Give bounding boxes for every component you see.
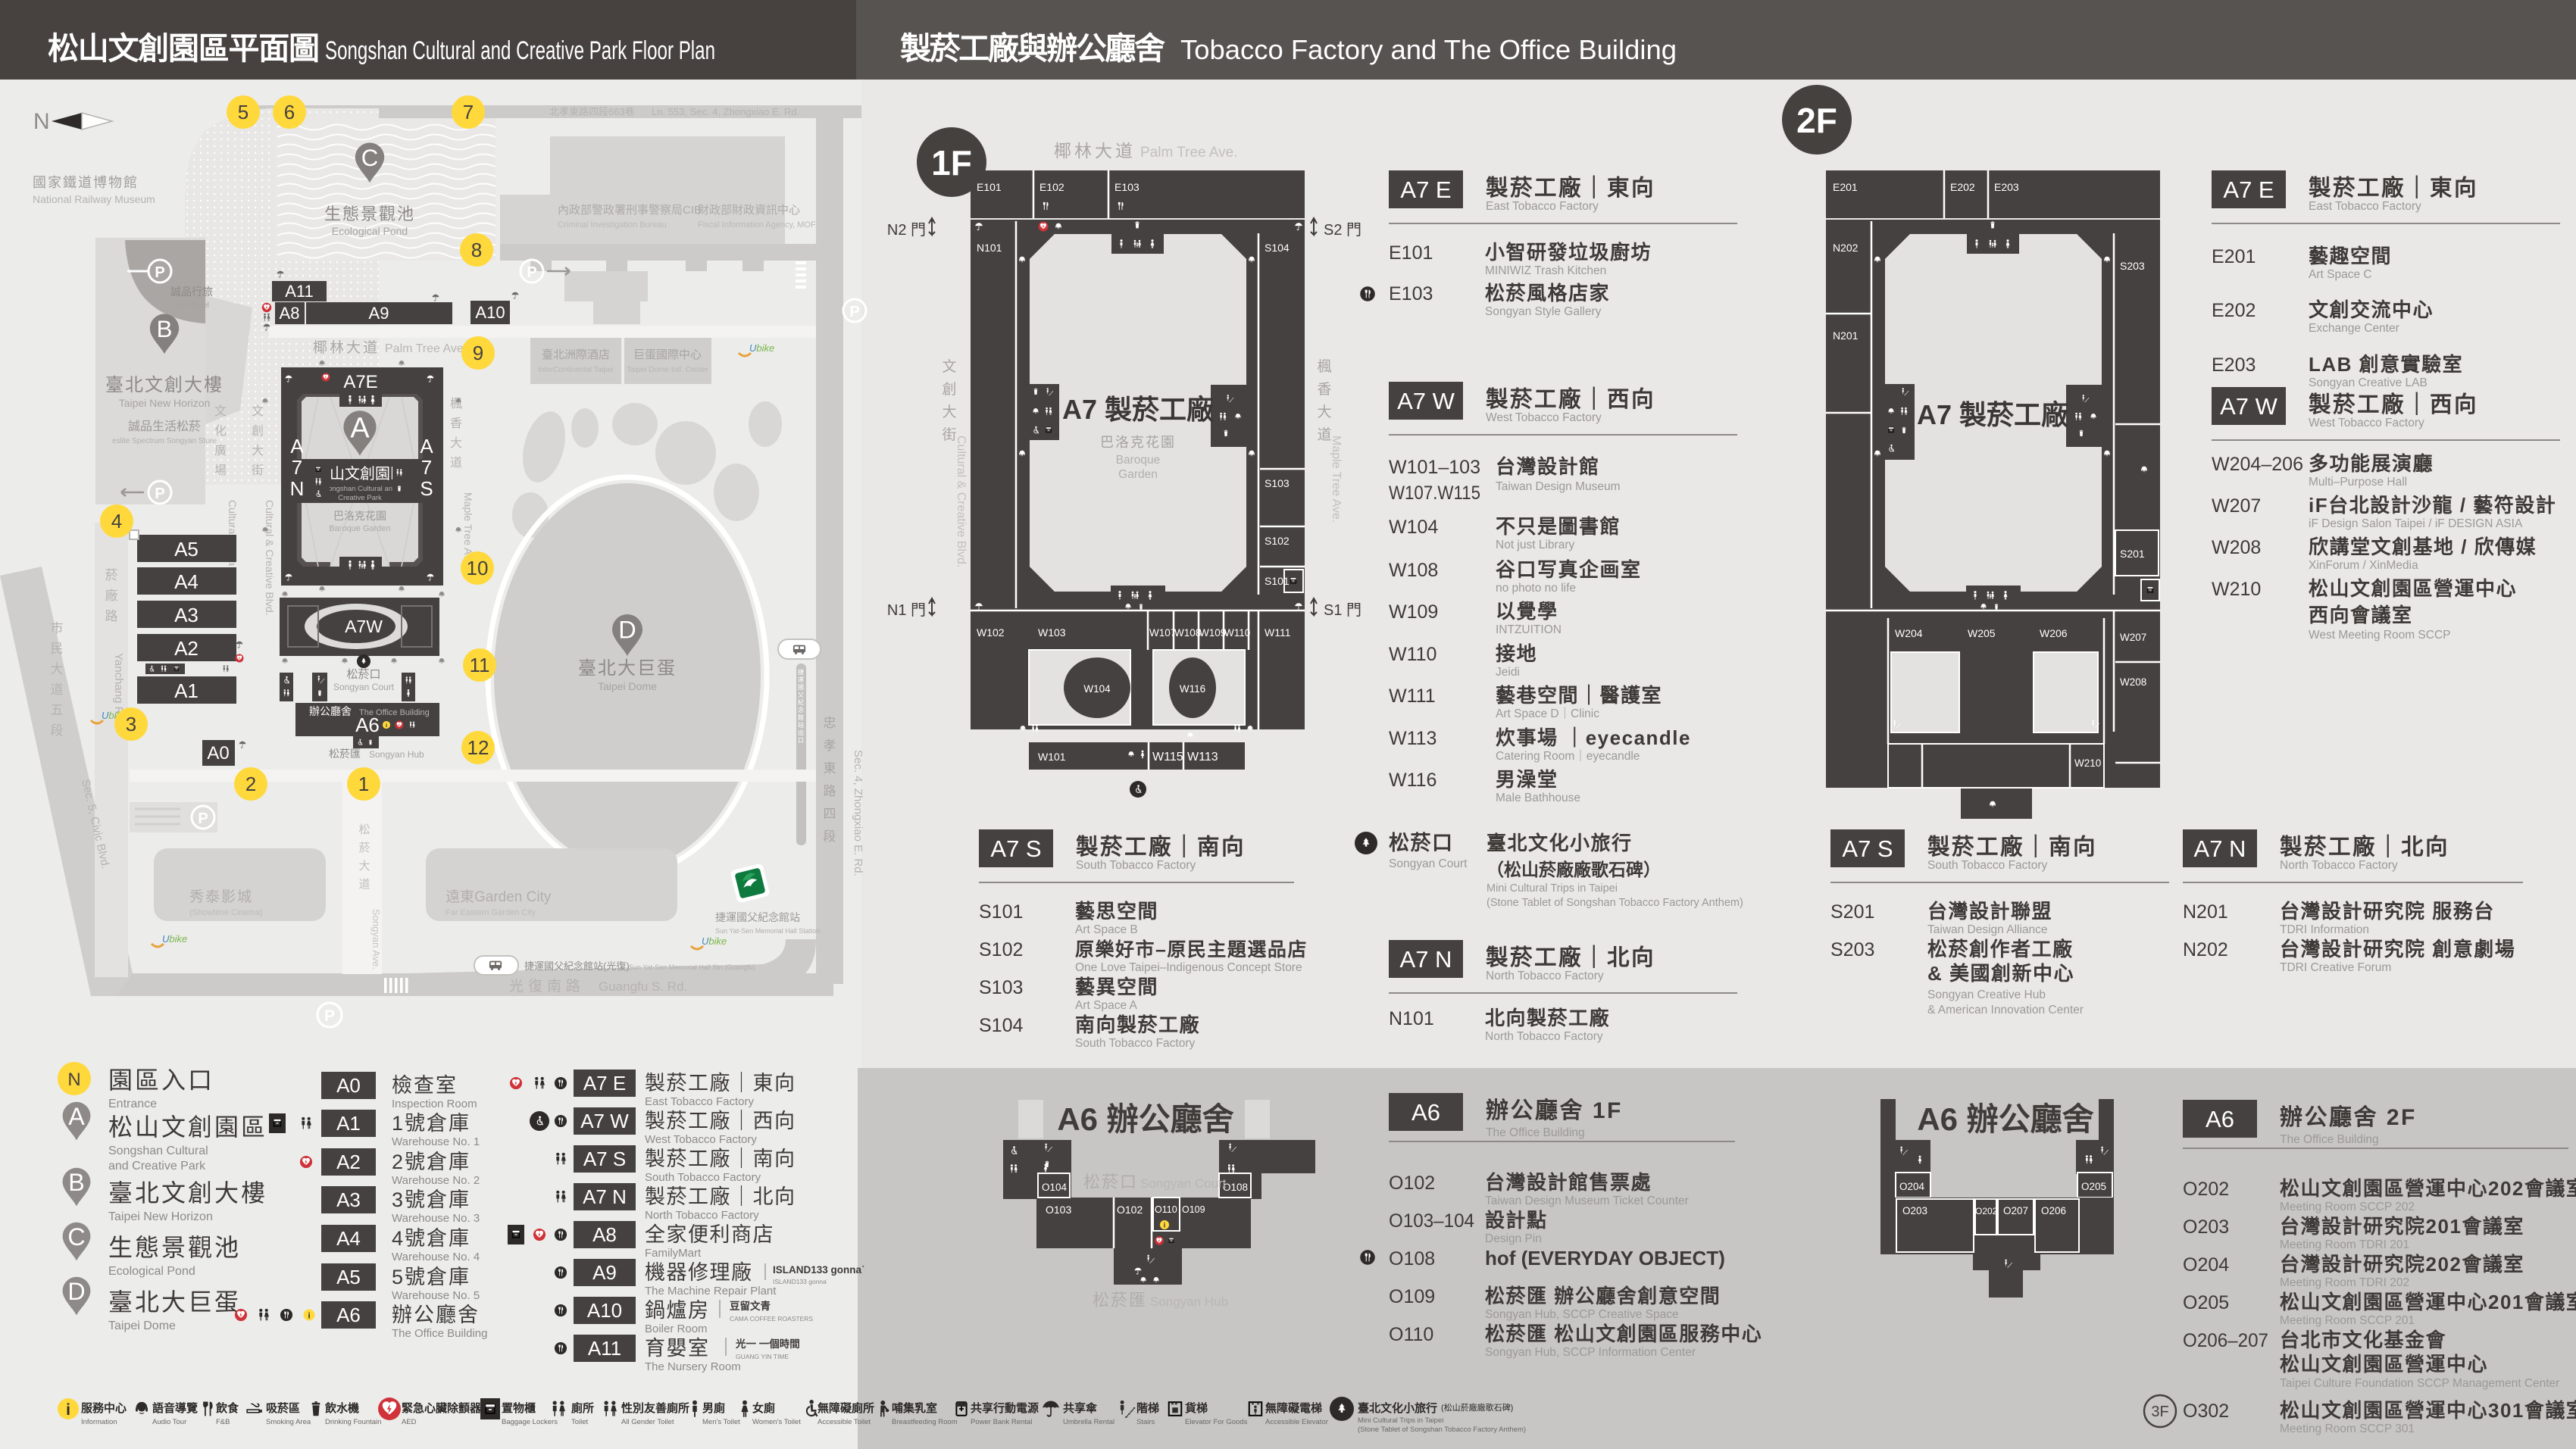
svg-text:Palm Tree Ave.: Palm Tree Ave. [385, 342, 467, 355]
svg-text:West Tobacco Factory: West Tobacco Factory [645, 1133, 757, 1146]
svg-text:Drinking Fountain: Drinking Fountain [325, 1418, 381, 1426]
svg-text:小智研發垃圾廚坊: 小智研發垃圾廚坊 [1485, 241, 1652, 264]
svg-text:Toilet: Toilet [571, 1418, 589, 1426]
svg-text:Men’s Toilet: Men’s Toilet [702, 1418, 740, 1426]
svg-text:女廁: 女廁 [752, 1401, 775, 1415]
svg-text:Ln. 553, Sec. 4, Zhongxiao E.: Ln. 553, Sec. 4, Zhongxiao E. Rd. [652, 106, 799, 117]
svg-text:S203: S203 [2120, 260, 2145, 272]
svg-text:A7S: A7S [420, 435, 433, 500]
svg-text:北孝東路四段663巷: 北孝東路四段663巷 [549, 106, 635, 117]
svg-text:i: i [386, 722, 387, 729]
svg-text:S102: S102 [1265, 535, 1290, 547]
svg-text:TDRI Creative Forum: TDRI Creative Forum [2280, 961, 2391, 974]
svg-text:椰林大道: 椰林大道 [1054, 141, 1136, 161]
svg-text:4號倉庫: 4號倉庫 [392, 1227, 470, 1250]
svg-text:內政部警政署刑事警察局CIB: 內政部警政署刑事警察局CIB [558, 203, 702, 217]
svg-text:辦公廳舍: 辦公廳舍 [309, 705, 352, 717]
svg-text:Meeting Room SCCP 202: Meeting Room SCCP 202 [2280, 1201, 2415, 1213]
svg-text:Exchange Center: Exchange Center [2309, 322, 2399, 335]
svg-text:S1 門: S1 門 [1324, 602, 1361, 619]
svg-text:A7 製菸工廠: A7 製菸工廠 [1062, 394, 1214, 425]
svg-text:接地: 接地 [1496, 642, 1537, 665]
svg-text:Inspection Room: Inspection Room [392, 1098, 477, 1110]
svg-text:W102: W102 [977, 626, 1005, 639]
svg-text:Boiler Room: Boiler Room [645, 1323, 708, 1335]
svg-text:W206: W206 [2040, 627, 2068, 639]
svg-text:巨蛋國際中心: 巨蛋國際中心 [633, 348, 702, 361]
svg-text:財政部財政資訊中心: 財政部財政資訊中心 [698, 204, 800, 217]
svg-text:製菸工廠｜北向: 製菸工廠｜北向 [645, 1185, 796, 1208]
svg-text:W207: W207 [2212, 495, 2261, 517]
svg-text:A7 W: A7 W [580, 1110, 629, 1132]
svg-text:Art Space D｜Clinic: Art Space D｜Clinic [1496, 707, 1599, 720]
svg-text:InterContinental Taipei: InterContinental Taipei [538, 366, 613, 374]
svg-text:臺北大巨蛋: 臺北大巨蛋 [578, 658, 677, 679]
svg-text:O203: O203 [2183, 1216, 2229, 1238]
svg-text:E101: E101 [977, 181, 1002, 193]
svg-text:i: i [66, 1401, 70, 1419]
svg-text:O108: O108 [1223, 1182, 1248, 1193]
svg-text:Ecological Pond: Ecological Pond [332, 225, 408, 237]
svg-text:男廁: 男廁 [702, 1401, 725, 1415]
svg-text:製菸工廠｜西向: 製菸工廠｜西向 [1486, 386, 1655, 412]
svg-text:East Tobacco Factory: East Tobacco Factory [645, 1095, 754, 1108]
svg-text:W210: W210 [2074, 757, 2101, 769]
svg-text:臺北文化小旅行: 臺北文化小旅行 [1358, 1401, 1437, 1415]
svg-text:N202: N202 [2183, 939, 2228, 960]
svg-text:W113: W113 [1389, 728, 1436, 749]
svg-text:Songyan Hub: Songyan Hub [369, 749, 424, 760]
svg-text:A6: A6 [1411, 1099, 1440, 1126]
svg-text:10: 10 [467, 557, 489, 579]
svg-text:A11: A11 [285, 282, 314, 301]
svg-text:製菸工廠｜西向: 製菸工廠｜西向 [645, 1110, 796, 1132]
svg-text:Songshan Cultural and: Songshan Cultural and [324, 485, 397, 493]
svg-text:F&B: F&B [216, 1418, 230, 1426]
svg-text:E201: E201 [1833, 181, 1858, 193]
svg-text:臺北文創大樓: 臺北文創大樓 [108, 1179, 267, 1207]
svg-text:A7 製菸工廠: A7 製菸工廠 [1917, 399, 2068, 430]
svg-text:TDRI Information: TDRI Information [2280, 923, 2369, 936]
svg-text:育嬰室: 育嬰室 [645, 1337, 710, 1360]
svg-text:松菸匯 辦公廳舍創意空間: 松菸匯 辦公廳舍創意空間 [1485, 1285, 1721, 1307]
svg-text:Cultural & Creative Blvd.: Cultural & Creative Blvd. [264, 500, 276, 616]
svg-text:The Office Building: The Office Building [392, 1327, 487, 1340]
svg-text:全家便利商店: 全家便利商店 [645, 1223, 774, 1246]
svg-text:A7 S: A7 S [1842, 835, 1893, 862]
svg-text:製菸工廠｜南向: 製菸工廠｜南向 [645, 1148, 796, 1170]
svg-text:S101: S101 [1265, 575, 1290, 587]
svg-text:Garden: Garden [1118, 468, 1158, 481]
svg-text:One Love Taipei–Indigenous Con: One Love Taipei–Indigenous Concept Store [1075, 961, 1302, 974]
svg-text:A7N: A7N [290, 435, 305, 500]
svg-text:藝異空間: 藝異空間 [1075, 976, 1158, 998]
svg-text:捷運國父紀念館站: 捷運國父紀念館站 [715, 911, 800, 923]
svg-text:光一 一個時間: 光一 一個時間 [735, 1338, 800, 1350]
svg-text:P: P [198, 810, 208, 827]
svg-text:A6 辦公廳舍: A6 辦公廳舍 [1057, 1101, 1233, 1137]
svg-text:B: B [68, 1169, 84, 1196]
svg-text:Sec. 4, Zhongxiao E. Rd.: Sec. 4, Zhongxiao E. Rd. [852, 750, 864, 876]
svg-text:The Machine Repair Plant: The Machine Repair Plant [645, 1285, 777, 1298]
svg-text:A4: A4 [336, 1227, 361, 1250]
svg-text:北向製菸工廠: 北向製菸工廠 [1485, 1007, 1610, 1029]
svg-text:A8: A8 [592, 1223, 617, 1246]
svg-text:松山文創園區營運中心202會議室: 松山文創園區營運中心202會議室 [2280, 1177, 2576, 1200]
svg-text:Information: Information [81, 1418, 117, 1426]
svg-text:Entrance: Entrance [108, 1098, 157, 1110]
svg-text:Meeting Room SCCP 201: Meeting Room SCCP 201 [2280, 1314, 2415, 1327]
svg-text:辦公廳舍 2F: 辦公廳舍 2F [2280, 1104, 2417, 1130]
svg-text:台灣設計研究院202會議室: 台灣設計研究院202會議室 [2280, 1253, 2524, 1276]
svg-text:The Office Building: The Office Building [1486, 1126, 1585, 1139]
svg-text:Male Bathhouse: Male Bathhouse [1496, 792, 1580, 804]
svg-text:Songyan Court: Songyan Court [333, 682, 395, 692]
svg-text:S201: S201 [1830, 901, 1874, 923]
svg-text:3: 3 [126, 713, 136, 735]
svg-text:A7 S: A7 S [583, 1148, 626, 1170]
svg-text:Taiwan Design Museum: Taiwan Design Museum [1496, 480, 1621, 493]
svg-text:O103: O103 [1046, 1204, 1071, 1216]
svg-text:(Stone Tablet of Songshan Toba: (Stone Tablet of Songshan Tobacco Factor… [1487, 897, 1743, 909]
svg-text:臺北文化小旅行: 臺北文化小旅行 [1487, 832, 1633, 854]
svg-text:A0: A0 [336, 1074, 361, 1097]
svg-text:A7W: A7W [345, 617, 383, 636]
svg-text:11: 11 [470, 654, 490, 676]
svg-text:A5: A5 [174, 538, 199, 561]
svg-text:A7 E: A7 E [2223, 176, 2274, 203]
svg-text:欣講堂文創基地 / 欣傳媒: 欣講堂文創基地 / 欣傳媒 [2309, 536, 2537, 558]
svg-text:D: D [618, 617, 636, 644]
svg-text:1F: 1F [931, 143, 972, 183]
svg-text:eslite Spectrum Songyan Store: eslite Spectrum Songyan Store [112, 437, 217, 445]
svg-text:無障礙廁所: 無障礙廁所 [818, 1401, 874, 1415]
svg-text:椰林大道: 椰林大道 [313, 339, 380, 356]
svg-text:鍋爐房: 鍋爐房 [645, 1299, 710, 1322]
svg-text:Stairs: Stairs [1136, 1418, 1155, 1426]
svg-text:飲水機: 飲水機 [324, 1401, 359, 1415]
svg-text:緊急心臟除顫器: 緊急心臟除顫器 [402, 1401, 482, 1415]
svg-text:i: i [308, 1311, 310, 1320]
svg-text:台灣設計研究院 創意劇場: 台灣設計研究院 創意劇場 [2280, 938, 2515, 960]
svg-text:E102: E102 [1039, 181, 1064, 193]
svg-text:East Tobacco Factory: East Tobacco Factory [1486, 200, 1599, 213]
svg-text:Taiwan Design Alliance: Taiwan Design Alliance [1927, 923, 2048, 936]
svg-text:Taipei Culture Foundation SCCP: Taipei Culture Foundation SCCP Managemen… [2280, 1377, 2559, 1390]
svg-text:廁所: 廁所 [571, 1401, 594, 1415]
svg-text:B: B [157, 316, 173, 342]
svg-text:Warehouse No. 4: Warehouse No. 4 [392, 1251, 480, 1263]
svg-text:語音導覽: 語音導覽 [152, 1401, 198, 1415]
svg-text:National Railway Museum: National Railway Museum [33, 193, 155, 205]
svg-text:製菸工廠與辦公廳舍: 製菸工廠與辦公廳舍 [900, 31, 1165, 66]
svg-text:Women’s Toilet: Women’s Toilet [752, 1418, 801, 1426]
svg-text:台灣設計聯盟: 台灣設計聯盟 [1927, 900, 2052, 923]
svg-text:松菸匯: 松菸匯 [329, 748, 361, 760]
svg-text:豆留文青: 豆留文青 [730, 1300, 771, 1312]
svg-text:N2 門: N2 門 [887, 222, 926, 239]
svg-text:W103: W103 [1038, 626, 1066, 639]
svg-text:Meeting Room SCCP 301: Meeting Room SCCP 301 [2280, 1422, 2415, 1435]
svg-text:Guangfu S. Rd.: Guangfu S. Rd. [599, 979, 687, 994]
svg-text:Songyan Ave.: Songyan Ave. [370, 909, 382, 970]
svg-text:and Creative Park: and Creative Park [108, 1160, 206, 1173]
svg-text:Warehouse No. 5: Warehouse No. 5 [392, 1289, 480, 1302]
svg-text:松菸創作者工廠: 松菸創作者工廠 [1927, 938, 2074, 960]
svg-text:W204–206: W204–206 [2212, 454, 2303, 475]
svg-text:W110: W110 [1224, 627, 1250, 639]
svg-text:O103–104: O103–104 [1389, 1210, 1474, 1232]
svg-text:P: P [527, 264, 536, 281]
svg-text:East Tobacco Factory: East Tobacco Factory [2309, 200, 2421, 213]
svg-text:Warehouse No. 1: Warehouse No. 1 [392, 1135, 480, 1148]
svg-text:W101–103: W101–103 [1389, 457, 1480, 478]
svg-text:S102: S102 [979, 939, 1023, 960]
svg-text:誠品生活松菸: 誠品生活松菸 [128, 420, 201, 433]
svg-text:Songyan Creative Hub: Songyan Creative Hub [1927, 988, 2046, 1001]
svg-text:O204: O204 [2183, 1254, 2229, 1276]
svg-text:A6: A6 [355, 714, 380, 736]
svg-text:Maple Tree Ave.: Maple Tree Ave. [1330, 436, 1343, 523]
svg-text:Mini Cultural Trips in Taipei: Mini Cultural Trips in Taipei [1487, 882, 1618, 895]
svg-text:Songyan Style Gallery: Songyan Style Gallery [1485, 305, 1602, 318]
svg-text:ISLAND133 gonna˙: ISLAND133 gonna˙ [773, 1264, 865, 1276]
svg-text:松菸口: 松菸口 [1389, 832, 1454, 854]
svg-text:W208: W208 [2120, 676, 2146, 688]
svg-text:A4: A4 [174, 570, 199, 593]
svg-text:製菸工廠｜東向: 製菸工廠｜東向 [1486, 175, 1655, 201]
svg-text:3F: 3F [2151, 1404, 2168, 1420]
svg-text:松菸匯 松山文創園區服務中心: 松菸匯 松山文創園區服務中心 [1485, 1323, 1762, 1345]
svg-text:(Stone Tablet of Songshan Toba: (Stone Tablet of Songshan Tobacco Factor… [1358, 1426, 1526, 1434]
svg-text:Meeting Room TDRI 202: Meeting Room TDRI 202 [2280, 1276, 2409, 1289]
svg-text:CAMA COFFEE ROASTERS: CAMA COFFEE ROASTERS [730, 1315, 813, 1323]
svg-text:E103: E103 [1114, 181, 1140, 193]
svg-text:The Nursery Room: The Nursery Room [645, 1360, 741, 1373]
svg-text:C: C [67, 1223, 85, 1251]
svg-text:台北市文化基金會: 台北市文化基金會 [2280, 1329, 2446, 1351]
svg-text:Taipei Dome Intl. Center: Taipei Dome Intl. Center [627, 366, 708, 374]
svg-text:製菸工廠｜東向: 製菸工廠｜東向 [645, 1072, 796, 1095]
svg-text:The Office Building: The Office Building [2280, 1133, 2379, 1146]
svg-text:機器修理廠: 機器修理廠 [645, 1261, 753, 1284]
svg-text:Elevator For Goods: Elevator For Goods [1185, 1418, 1248, 1426]
svg-text:谷口写真企画室: 谷口写真企画室 [1496, 558, 1642, 581]
svg-text:E201: E201 [2212, 246, 2256, 267]
svg-text:A1: A1 [336, 1112, 361, 1135]
svg-text:West Tobacco Factory: West Tobacco Factory [1486, 411, 1602, 424]
svg-text:W115: W115 [1152, 751, 1183, 764]
svg-text:Art Space B: Art Space B [1075, 923, 1138, 936]
svg-text:6: 6 [284, 101, 295, 123]
svg-text:檢查室: 檢查室 [392, 1074, 458, 1097]
svg-text:台灣設計研究院201會議室: 台灣設計研究院201會議室 [2280, 1215, 2524, 1238]
svg-text:i: i [1164, 1222, 1166, 1229]
svg-text:3號倉庫: 3號倉庫 [392, 1188, 470, 1211]
svg-text:N101: N101 [1389, 1008, 1434, 1029]
svg-text:North Tobacco Factory: North Tobacco Factory [645, 1209, 759, 1222]
svg-text:Warehouse No. 2: Warehouse No. 2 [392, 1174, 480, 1187]
svg-text:松山文創園區: 松山文創園區 [108, 1113, 267, 1141]
svg-text:W116: W116 [1180, 683, 1205, 695]
svg-text:O205: O205 [2183, 1292, 2229, 1313]
svg-text:W207: W207 [2120, 632, 2146, 643]
svg-text:O104: O104 [1042, 1182, 1068, 1193]
svg-text:A11: A11 [588, 1337, 621, 1360]
svg-text:A6 辦公廳舍: A6 辦公廳舍 [1917, 1101, 2093, 1137]
svg-text:Cultural & Creative Blvd.: Cultural & Creative Blvd. [955, 436, 968, 567]
svg-text:捷運國父紀念館站(光復): 捷運國父紀念館站(光復) [524, 960, 630, 972]
svg-text:男澡堂: 男澡堂 [1496, 768, 1558, 791]
svg-text:O202: O202 [2183, 1179, 2229, 1200]
svg-text:C: C [361, 145, 379, 171]
svg-text:iF台北設計沙龍 / 藝符設計: iF台北設計沙龍 / 藝符設計 [2309, 494, 2556, 517]
svg-text:E203: E203 [2212, 354, 2256, 376]
svg-text:Ubike: Ubike [702, 935, 727, 947]
svg-text:Songyan Hub, SCCP Creative Spa: Songyan Hub, SCCP Creative Space [1485, 1308, 1679, 1321]
svg-text:Songyan Hub: Songyan Hub [1150, 1294, 1228, 1309]
svg-text:W111: W111 [1265, 626, 1291, 639]
svg-text:A10: A10 [587, 1299, 622, 1322]
svg-text:A0: A0 [207, 743, 229, 764]
svg-text:松山文創園區營運中心: 松山文創園區營運中心 [2280, 1353, 2488, 1376]
svg-text:Mini Cultural Trips in Taipei: Mini Cultural Trips in Taipei [1358, 1416, 1443, 1425]
svg-text:O205: O205 [2081, 1181, 2106, 1192]
svg-text:藝思空間: 藝思空間 [1075, 900, 1158, 923]
svg-text:12: 12 [467, 736, 489, 759]
svg-text:South Tobacco Factory: South Tobacco Factory [645, 1171, 761, 1184]
svg-text:辦公廳舍: 辦公廳舍 [392, 1304, 480, 1326]
svg-text:Ubike: Ubike [162, 933, 187, 945]
svg-text:多功能展演廳: 多功能展演廳 [2309, 452, 2434, 475]
svg-text:A8: A8 [280, 304, 300, 323]
svg-text:文創交流中心: 文創交流中心 [2309, 298, 2434, 321]
svg-text:O102: O102 [1389, 1173, 1435, 1194]
svg-text:西向會議室: 西向會議室 [2309, 604, 2413, 626]
svg-text:Taipei New Horizon: Taipei New Horizon [119, 397, 211, 409]
svg-text:South Tobacco Factory: South Tobacco Factory [1076, 859, 1196, 872]
svg-text:製菸工廠｜南向: 製菸工廠｜南向 [1076, 834, 1246, 860]
svg-text:8: 8 [471, 239, 482, 261]
svg-text:P: P [849, 304, 859, 320]
svg-text:性別友善廁所: 性別友善廁所 [621, 1401, 689, 1415]
svg-text:Creative Park: Creative Park [338, 494, 382, 502]
svg-text:& 美國創新中心: & 美國創新中心 [1927, 962, 2074, 985]
svg-text:W204: W204 [1895, 627, 1923, 639]
svg-text:South Tobacco Factory: South Tobacco Factory [1927, 859, 2047, 872]
svg-text:Taipei Dome: Taipei Dome [108, 1319, 176, 1332]
svg-text:Baroque Garden: Baroque Garden [329, 524, 390, 533]
svg-text:飲食: 飲食 [215, 1401, 239, 1415]
svg-text:1號倉庫: 1號倉庫 [392, 1112, 470, 1135]
svg-text:4: 4 [111, 510, 122, 532]
svg-text:W101: W101 [1038, 751, 1066, 763]
svg-text:2號倉庫: 2號倉庫 [392, 1151, 470, 1173]
svg-text:O204: O204 [1899, 1181, 1925, 1192]
svg-text:Ubike: Ubike [749, 342, 774, 354]
svg-text:D: D [67, 1278, 85, 1305]
svg-text:Songshan Cultural: Songshan Cultural [108, 1145, 208, 1157]
svg-text:E101: E101 [1389, 242, 1433, 264]
svg-text:Art Space A: Art Space A [1075, 999, 1138, 1012]
svg-text:A7E: A7E [343, 372, 377, 392]
svg-text:Design Pin: Design Pin [1485, 1232, 1542, 1245]
svg-text:Umbrella Rental: Umbrella Rental [1063, 1418, 1114, 1426]
svg-text:North Tobacco Factory: North Tobacco Factory [1485, 1030, 1603, 1043]
svg-text:West Meeting Room SCCP: West Meeting Room SCCP [2309, 629, 2451, 642]
svg-text:巴洛克花園: 巴洛克花園 [1100, 435, 1176, 450]
svg-text:O110: O110 [1155, 1204, 1177, 1215]
svg-text:AED: AED [402, 1418, 417, 1426]
svg-text:Tobacco Factory and The Office: Tobacco Factory and The Office Building [1180, 34, 1677, 65]
svg-text:（松山菸廠廠歌石碑）: （松山菸廠廠歌石碑） [1487, 860, 1661, 879]
svg-text:A7 E: A7 E [1400, 176, 1451, 203]
svg-text:共享傘: 共享傘 [1063, 1401, 1098, 1415]
svg-text:Breastfeeding Room: Breastfeeding Room [892, 1418, 958, 1426]
svg-text:O108: O108 [1389, 1248, 1435, 1269]
svg-text:2F: 2F [1796, 101, 1837, 140]
svg-text:South Tobacco Factory: South Tobacco Factory [1075, 1037, 1195, 1050]
svg-text:臺北洲際酒店: 臺北洲際酒店 [542, 348, 610, 361]
svg-text:(松山菸廠廠歌石碑): (松山菸廠廠歌石碑) [1441, 1402, 1513, 1413]
svg-text:E103: E103 [1389, 283, 1433, 304]
svg-text:A: A [68, 1103, 85, 1130]
svg-text:松菸風格店家: 松菸風格店家 [1485, 282, 1610, 304]
svg-text:W108: W108 [1174, 627, 1201, 639]
svg-text:Fiscal Information Agency, MOF: Fiscal Information Agency, MOF [698, 220, 816, 230]
svg-text:A6: A6 [336, 1304, 361, 1326]
svg-text:台灣設計館售票處: 台灣設計館售票處 [1485, 1171, 1652, 1194]
svg-text:A7 N: A7 N [583, 1185, 627, 1208]
svg-text:吸菸區: 吸菸區 [266, 1401, 300, 1415]
svg-text:no photo no life: no photo no life [1496, 582, 1576, 595]
svg-text:W116: W116 [1389, 770, 1436, 791]
svg-text:5號倉庫: 5號倉庫 [392, 1266, 470, 1288]
svg-text:O202: O202 [1975, 1206, 1998, 1216]
svg-text:A7 E: A7 E [583, 1072, 626, 1095]
svg-text:E203: E203 [1994, 181, 2019, 193]
svg-text:階梯: 階梯 [1136, 1401, 1159, 1415]
svg-text:W111: W111 [1389, 685, 1436, 707]
svg-text:秀泰影城: 秀泰影城 [189, 888, 253, 905]
svg-text:O203: O203 [1902, 1205, 1927, 1216]
svg-text:W210: W210 [2212, 579, 2261, 600]
svg-text:A3: A3 [336, 1188, 361, 1211]
svg-text:生態景觀池: 生態景觀池 [108, 1234, 241, 1261]
svg-text:Songyan Court: Songyan Court [1140, 1176, 1227, 1191]
svg-text:W208: W208 [2212, 537, 2261, 558]
svg-text:O206: O206 [2041, 1205, 2066, 1216]
svg-text:不只是圖書館: 不只是圖書館 [1496, 515, 1621, 538]
svg-text:S103: S103 [1265, 477, 1290, 489]
svg-text:N1 門: N1 門 [887, 602, 926, 619]
svg-text:Art Space C: Art Space C [2309, 268, 2372, 281]
svg-text:製菸工廠｜東向: 製菸工廠｜東向 [2309, 175, 2478, 201]
svg-text:Taipei Dome: Taipei Dome [598, 680, 657, 692]
svg-text:Far Eastern Garden City: Far Eastern Garden City [445, 908, 536, 917]
svg-text:W108: W108 [1389, 560, 1438, 581]
svg-text:生態景觀池: 生態景觀池 [324, 205, 415, 223]
svg-text:台灣設計研究院 服務台: 台灣設計研究院 服務台 [2280, 900, 2495, 923]
svg-text:FamilyMart: FamilyMart [645, 1247, 702, 1260]
svg-text:Accessible Elevator: Accessible Elevator [1265, 1418, 1328, 1426]
svg-text:MINIWIZ Trash Kitchen: MINIWIZ Trash Kitchen [1485, 264, 1606, 277]
svg-text:Songyan Creative LAB: Songyan Creative LAB [2309, 376, 2428, 389]
svg-text:Sun Yat-Sen Memorial Hall Stat: Sun Yat-Sen Memorial Hall Station [715, 927, 820, 935]
svg-text:服務中心: 服務中心 [81, 1401, 127, 1415]
svg-text:藝趣空間: 藝趣空間 [2309, 245, 2392, 267]
svg-text:S104: S104 [979, 1015, 1023, 1036]
